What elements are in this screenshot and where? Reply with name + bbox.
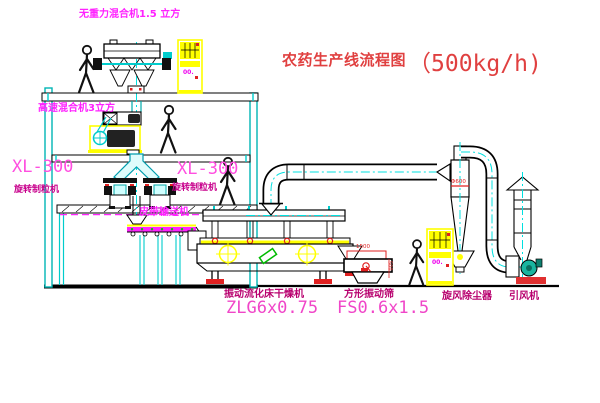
label-granulator-right-model: XL-300	[177, 161, 238, 178]
mixer-outlet-stub	[163, 52, 172, 59]
label-fan: 引风机	[509, 292, 539, 302]
fan-base	[516, 277, 546, 284]
title-text: 农药生产线流程图	[282, 49, 406, 70]
dimension-cyclone-diameter: Φ600	[451, 179, 466, 185]
cyclone-outlet-pipe	[461, 152, 521, 267]
high-speed-mixer	[88, 112, 142, 154]
control-cabinet-right	[427, 229, 453, 285]
title-capacity: （500kg/h)	[408, 44, 542, 78]
page-title: 农药生产线流程图 （500kg/h)	[282, 44, 542, 78]
control-cabinet-top	[178, 40, 202, 93]
induced-draft-fan	[506, 256, 546, 284]
process-flow-diagram: 农药生产线流程图 （500kg/h) 无重力混合机1.5 立方 高速混合机3立方…	[0, 0, 600, 403]
cyclone-inlet-reducer	[437, 164, 450, 181]
dimension-screen-length: 1500	[356, 244, 370, 250]
dimension-screen-height: 500	[387, 261, 392, 271]
person-figure-roof	[79, 46, 94, 93]
person-figure-ground	[409, 240, 423, 284]
cabinet-top-indicator: 00.	[183, 70, 194, 76]
label-belt-conveyor: 皮带输送机	[139, 208, 189, 218]
label-gravity-free-mixer: 无重力混合机1.5 立方	[79, 10, 180, 20]
label-dryer-model: ZLG6x0.75	[226, 300, 318, 317]
roof-slab	[42, 93, 258, 101]
exhaust-duct	[259, 164, 450, 215]
rotary-granulator-left	[103, 178, 137, 209]
label-granulator-left-name: 旋转制粒机	[14, 186, 59, 195]
ground-line	[44, 285, 559, 289]
cabinet-right-indicator: 00.	[432, 260, 443, 266]
label-screen-model: FS0.6x1.5	[337, 300, 429, 317]
fluid-bed-dryer	[188, 206, 362, 284]
label-high-speed-mixer: 高速混合机3立方	[38, 104, 115, 114]
label-cyclone: 旋风除尘器	[442, 292, 492, 302]
label-granulator-left-model: XL-300	[12, 159, 73, 176]
person-figure-second-floor	[161, 106, 176, 153]
label-granulator-right-name: 旋转制粒机	[172, 184, 217, 193]
